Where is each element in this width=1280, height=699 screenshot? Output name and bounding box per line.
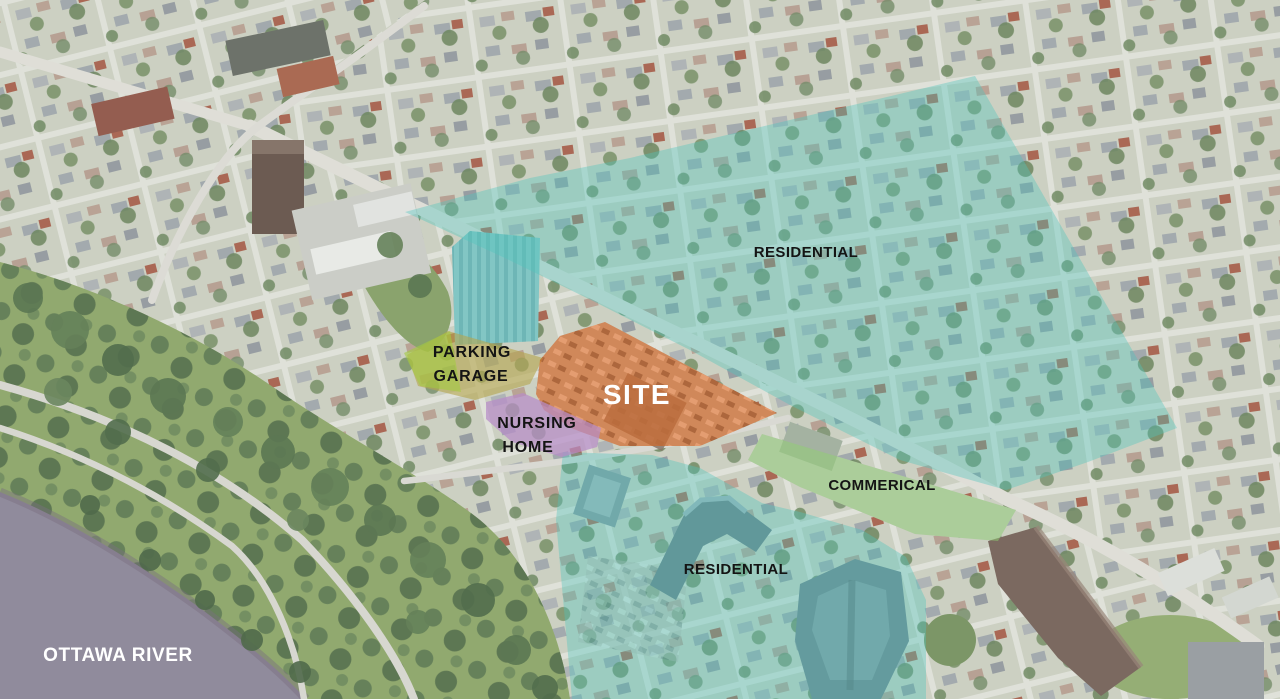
parking-garage-label-line2: GARAGE <box>433 368 508 385</box>
site-label: SITE <box>603 379 671 410</box>
nursing-home-label-line1: NURSING <box>497 415 576 432</box>
parking-garage-label-line1: PARKING <box>433 344 511 361</box>
zone-residential-tower-overlay <box>452 231 540 345</box>
residential-north-label: RESIDENTIAL <box>754 244 858 261</box>
aerial-map-svg: RESIDENTIAL PARKING GARAGE SITE NURSING … <box>0 0 1280 699</box>
nursing-home-label-line2: HOME <box>502 439 553 456</box>
commercial-label: COMMERICAL <box>828 477 935 494</box>
ottawa-river-label: OTTAWA RIVER <box>43 645 193 666</box>
residential-south-label: RESIDENTIAL <box>684 561 788 578</box>
aerial-site-context-map: RESIDENTIAL PARKING GARAGE SITE NURSING … <box>0 0 1280 699</box>
